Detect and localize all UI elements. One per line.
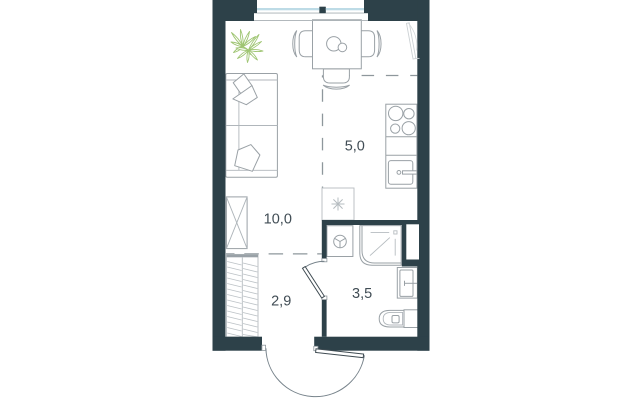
svg-text:3,5: 3,5 — [352, 286, 372, 302]
svg-text:5,0: 5,0 — [345, 138, 365, 154]
svg-text:2,9: 2,9 — [271, 293, 291, 309]
svg-text:10,0: 10,0 — [264, 211, 292, 227]
